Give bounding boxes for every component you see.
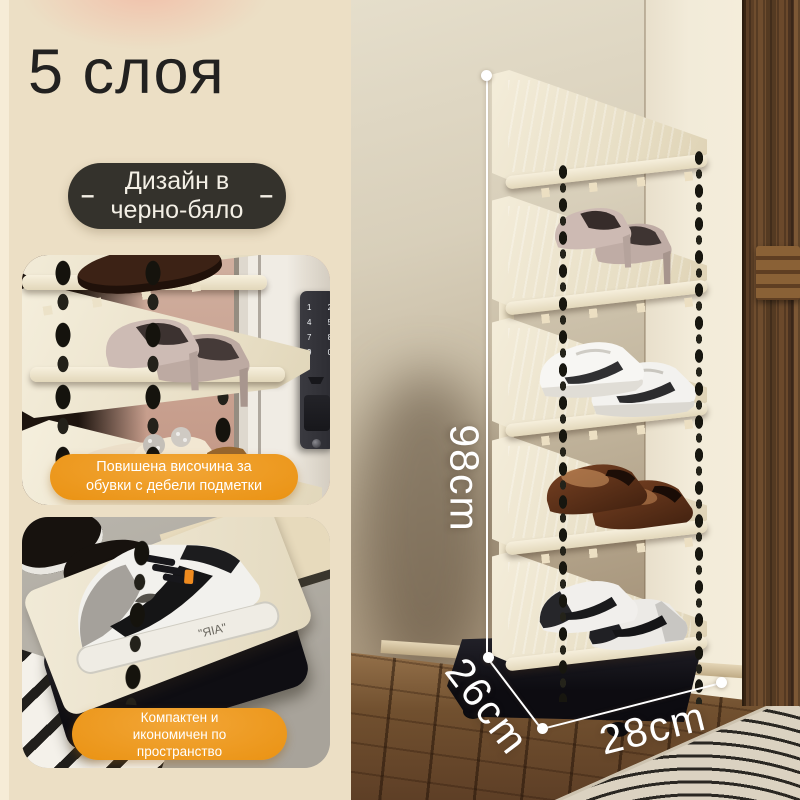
design-badge: – Дизайн в черно-бяло – [68,163,286,229]
badge-line-1: Дизайн в [125,167,229,196]
measure-dot [537,723,548,734]
headline-layers: 5 слоя [28,36,225,108]
chain-back [692,148,706,704]
shoes-heels [92,301,297,419]
door-wood-detail [756,246,800,300]
measure-dot [481,70,492,81]
main-product-photo: 98cm 26cm 28cm [351,0,800,800]
photo-heels-closeup: 1 2 4 5 7 8 9 0 [22,255,330,505]
keypad-row: 9 0 [307,348,330,357]
keypad-row: 4 5 [307,318,330,327]
badge-line-2: черно-бяло [111,196,244,225]
lock-keypad: 1 2 4 5 7 8 9 0 [307,303,330,357]
callout-line: Повишена височина за [96,458,252,477]
keypad-row: 1 2 [307,303,330,312]
photo-compact-closeup: "ЯIA" Компактен и икономичен по простран… [22,517,330,768]
wood-door-frame [742,0,800,706]
lock-handle [304,395,330,431]
lock-speaker-slot [308,377,324,384]
callout-compact: Компактен и икономичен по пространство [72,708,287,760]
callout-thick-soles: Повишена височина за обувки с дебели под… [50,454,298,500]
callout-line: Компактен и [141,709,219,726]
dimension-height-label: 98cm [441,414,488,544]
callout-line: обувки с дебели подметки [86,477,262,496]
callout-line: икономичен по [133,726,226,743]
product-banner: 5 слоя – Дизайн в черно-бяло – 1 2 4 5 7… [0,0,800,800]
measure-dot [716,677,727,688]
left-edge-highlight [0,0,9,800]
measure-line-height [486,75,488,657]
lock-knob [312,439,321,448]
badge-dash-right: – [260,182,273,210]
callout-line: пространство [137,743,222,760]
badge-dash-left: – [81,182,94,210]
chain-front [556,162,570,702]
measure-dot [483,652,494,663]
keypad-row: 7 8 [307,333,330,342]
shoes-sneaker-jordan: "ЯIA" [40,517,308,697]
